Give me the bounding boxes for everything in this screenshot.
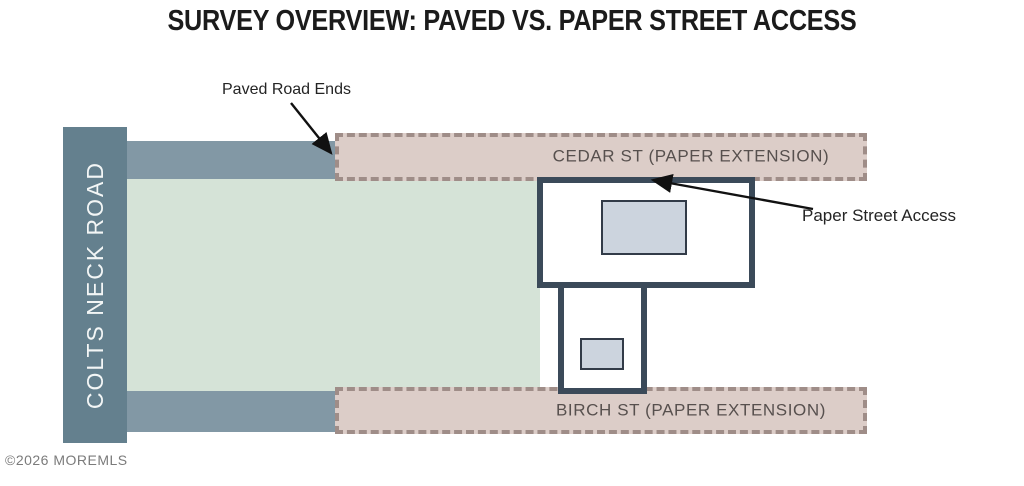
page-title-text: SURVEY OVERVIEW: PAVED VS. PAPER STREET … xyxy=(167,5,856,38)
building-upper xyxy=(601,200,687,255)
page-title: SURVEY OVERVIEW: PAVED VS. PAPER STREET … xyxy=(0,5,1024,38)
building-lower xyxy=(580,338,624,370)
birch-street-paper-extension: BIRCH ST (PAPER EXTENSION) xyxy=(335,387,867,434)
colts-neck-road-label: COLTS NECK ROAD xyxy=(82,161,109,409)
colts-neck-road: COLTS NECK ROAD xyxy=(63,127,127,443)
paved-road-ends-label: Paved Road Ends xyxy=(222,81,351,99)
copyright-watermark: ©2026 MOREMLS xyxy=(5,452,128,468)
paved-road-bottom xyxy=(127,391,338,432)
survey-diagram: SURVEY OVERVIEW: PAVED VS. PAPER STREET … xyxy=(0,0,1024,486)
parcel-area xyxy=(127,179,540,391)
paved-road-top xyxy=(127,141,338,179)
cedar-street-paper-extension: CEDAR ST (PAPER EXTENSION) xyxy=(335,133,867,181)
birch-street-label: BIRCH ST (PAPER EXTENSION) xyxy=(519,400,863,420)
cedar-street-label: CEDAR ST (PAPER EXTENSION) xyxy=(519,147,863,167)
paper-street-access-label: Paper Street Access xyxy=(802,206,956,226)
